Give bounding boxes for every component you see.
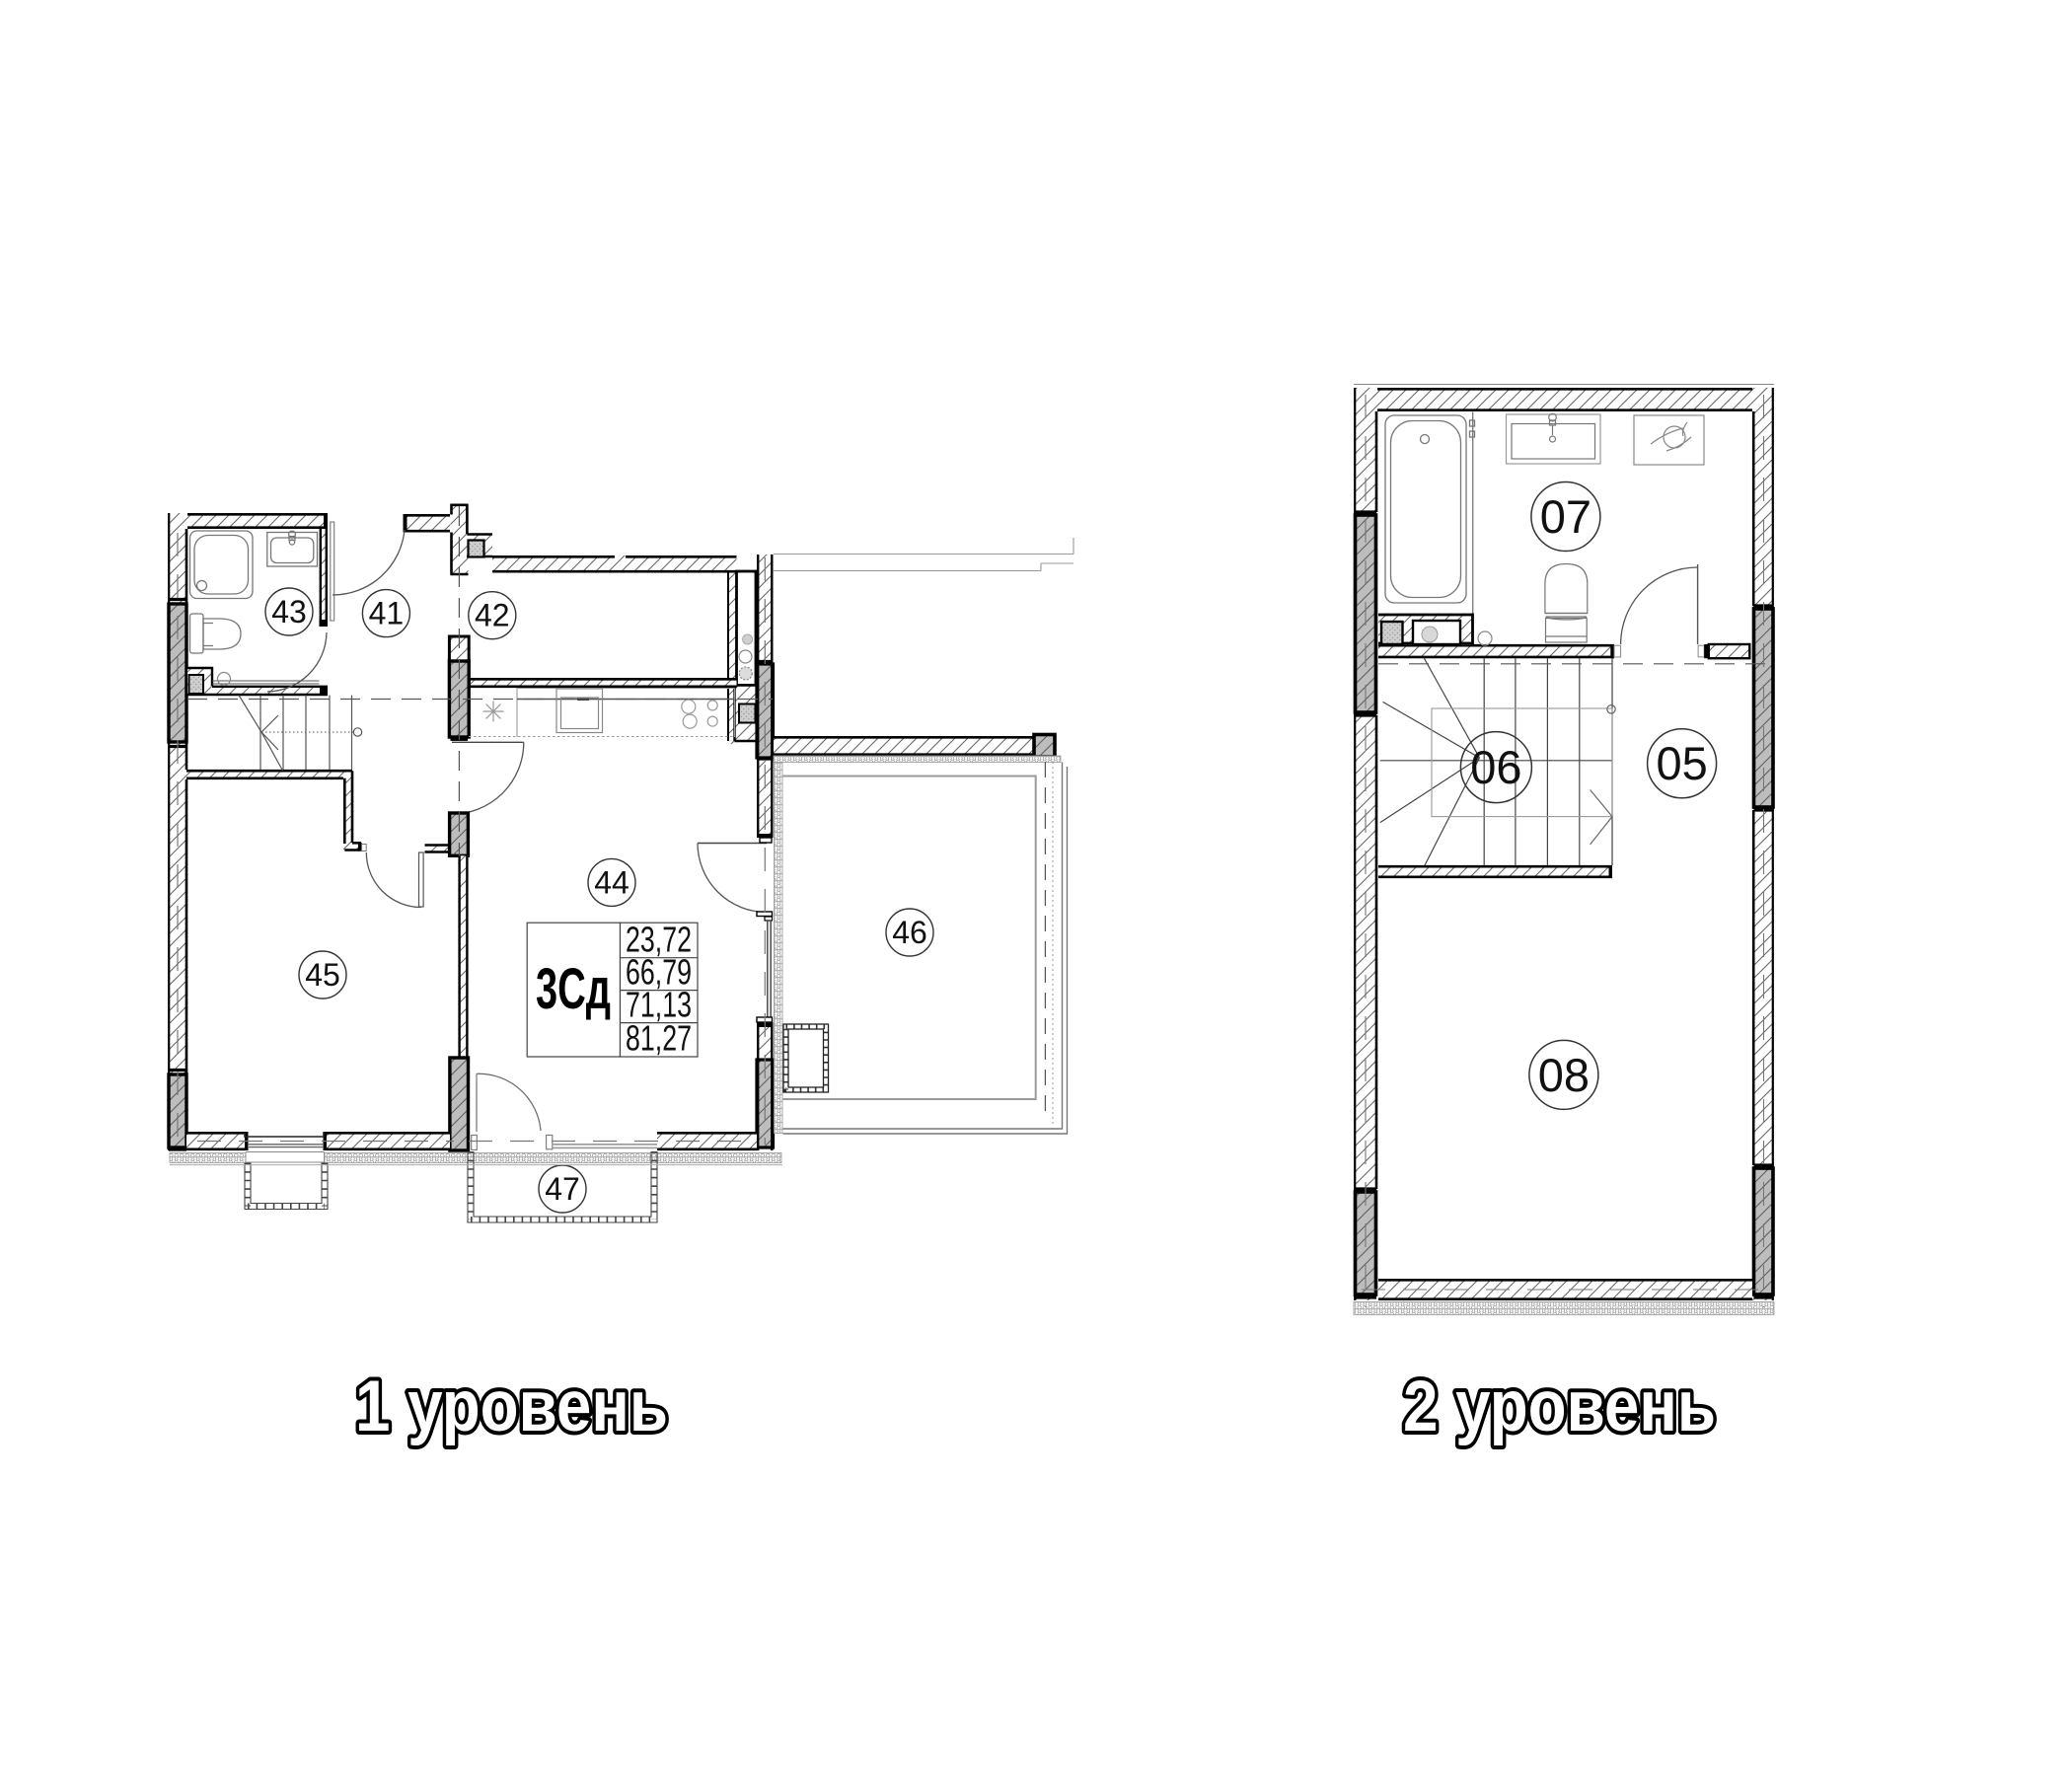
- svg-text:42: 42: [475, 598, 510, 633]
- svg-text:06: 06: [1470, 741, 1521, 793]
- svg-text:44: 44: [594, 864, 629, 900]
- svg-text:1 уровень: 1 уровень: [355, 1367, 668, 1446]
- svg-text:2 уровень: 2 уровень: [1403, 1367, 1716, 1446]
- svg-text:05: 05: [1656, 737, 1707, 789]
- svg-text:46: 46: [892, 915, 927, 950]
- svg-text:45: 45: [305, 957, 340, 993]
- svg-text:47: 47: [545, 1171, 580, 1207]
- svg-text:41: 41: [369, 596, 405, 631]
- svg-text:43: 43: [271, 594, 307, 629]
- svg-text:08: 08: [1538, 1049, 1590, 1101]
- svg-text:07: 07: [1540, 490, 1591, 543]
- svg-text:3Сд: 3Сд: [536, 957, 611, 1021]
- svg-text:81,27: 81,27: [626, 1018, 692, 1059]
